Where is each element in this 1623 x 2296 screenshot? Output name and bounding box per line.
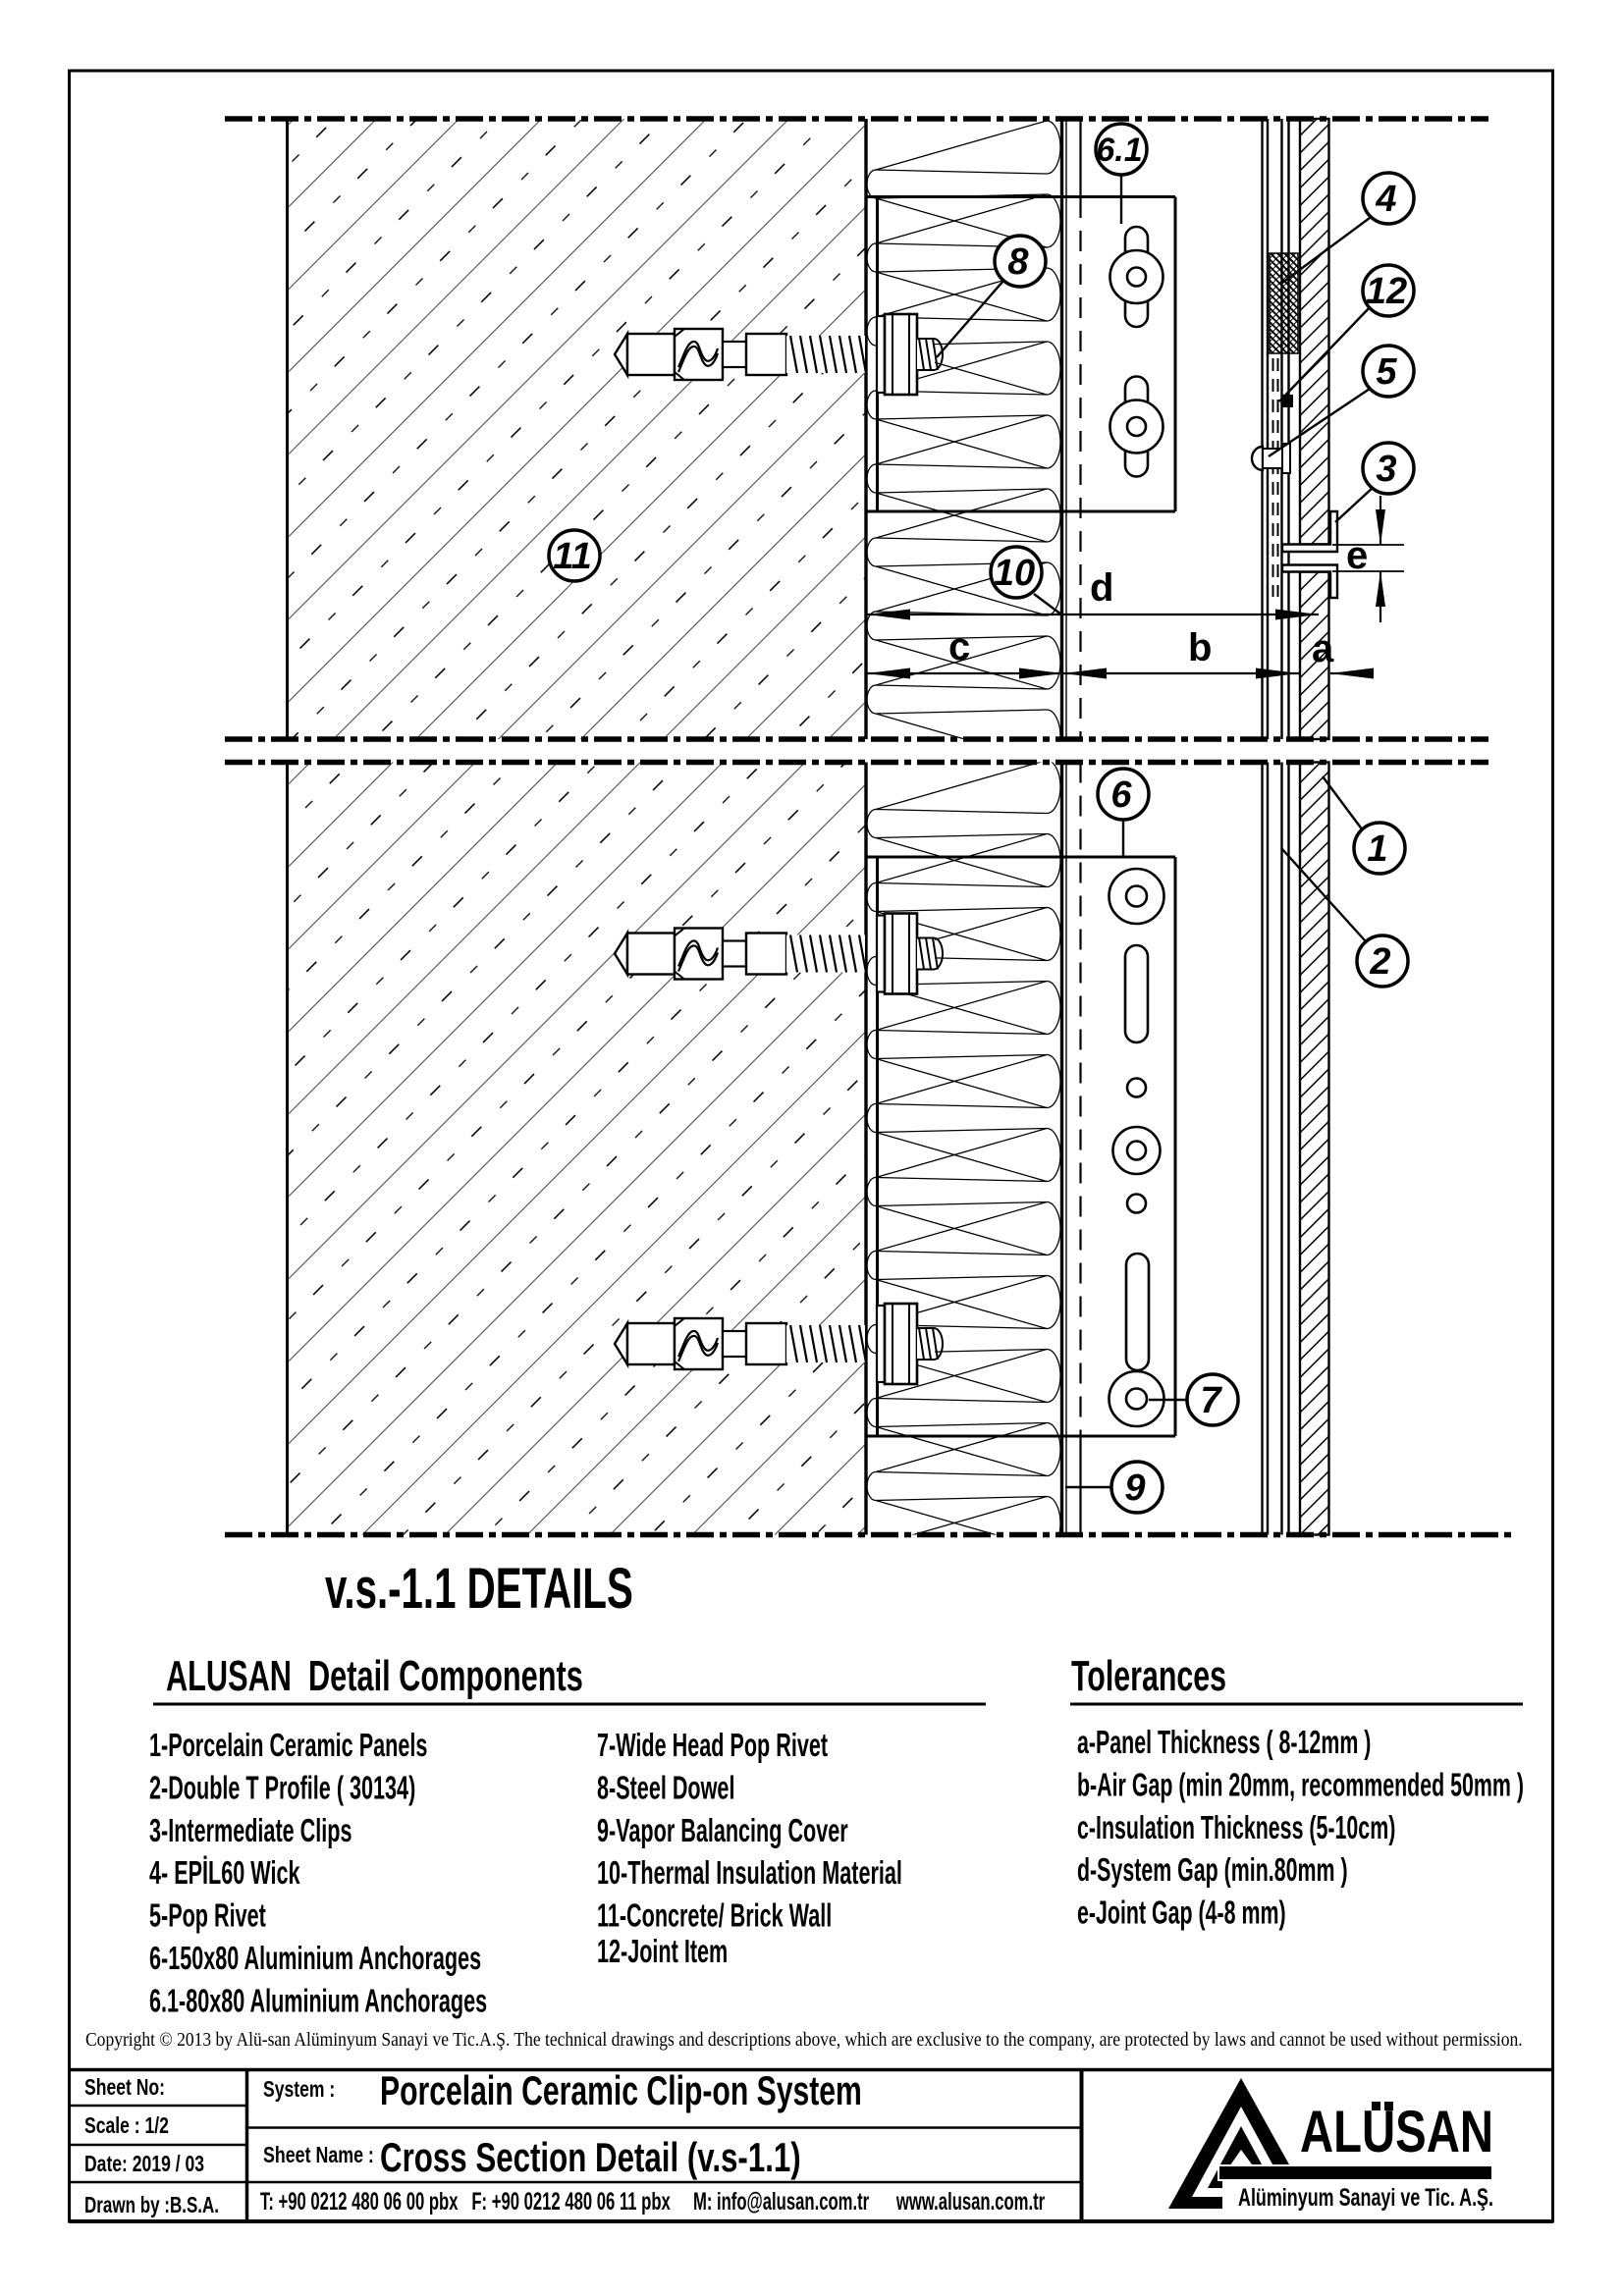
svg-text:v.s.-1.1 DETAILS: v.s.-1.1 DETAILS <box>325 1557 633 1621</box>
svg-text:7: 7 <box>1200 1380 1222 1421</box>
svg-text:10-Thermal Insulation Material: 10-Thermal Insulation Material <box>597 1855 902 1892</box>
svg-text:System :: System : <box>263 2077 335 2103</box>
svg-text:9-Vapor Balancing Cover: 9-Vapor Balancing Cover <box>597 1812 848 1848</box>
svg-text:6: 6 <box>1110 774 1132 816</box>
svg-text:3-Intermediate Clips: 3-Intermediate Clips <box>149 1812 352 1848</box>
svg-text:d-System Gap (min.80mm ): d-System Gap (min.80mm ) <box>1077 1852 1348 1889</box>
svg-text:d: d <box>1090 566 1113 610</box>
svg-text:e: e <box>1346 534 1368 577</box>
svg-text:5: 5 <box>1376 351 1397 393</box>
svg-text:e-Joint Gap (4-8 mm): e-Joint Gap (4-8 mm) <box>1077 1895 1286 1931</box>
svg-text:Date: 2019 / 03: Date: 2019 / 03 <box>84 2152 204 2177</box>
svg-text:a-Panel Thickness ( 8-12mm ): a-Panel Thickness ( 8-12mm ) <box>1077 1724 1371 1760</box>
svg-text:10: 10 <box>994 553 1035 594</box>
svg-text:11-Concrete/ Brick Wall: 11-Concrete/ Brick Wall <box>597 1897 832 1934</box>
svg-text:12: 12 <box>1366 271 1407 312</box>
svg-text:12-Joint Item: 12-Joint Item <box>597 1933 728 1969</box>
svg-text:5-Pop Rivet: 5-Pop Rivet <box>149 1897 266 1934</box>
svg-text:c-Insulation Thickness (5-10cm: c-Insulation Thickness (5-10cm) <box>1077 1809 1395 1845</box>
svg-text:4- EPİL60 Wick: 4- EPİL60 Wick <box>149 1855 300 1892</box>
svg-text:9: 9 <box>1124 1468 1145 1509</box>
svg-text:2-Double T Profile ( 30134): 2-Double T Profile ( 30134) <box>149 1770 415 1806</box>
svg-text:3: 3 <box>1376 449 1396 490</box>
svg-text:Scale : 1/2: Scale : 1/2 <box>84 2113 169 2139</box>
svg-text:b-Air Gap (min 20mm, recommend: b-Air Gap (min 20mm, recommended 50mm ) <box>1077 1767 1524 1803</box>
svg-text:Porcelain Ceramic Clip-on Syst: Porcelain Ceramic Clip-on System <box>380 2067 862 2113</box>
svg-text:Tolerances: Tolerances <box>1071 1653 1226 1701</box>
svg-text:6-150x80 Aluminium Anchorages: 6-150x80 Aluminium Anchorages <box>149 1940 481 1976</box>
svg-text:Drawn by :B.S.A.: Drawn by :B.S.A. <box>84 2194 219 2218</box>
svg-text:b: b <box>1188 626 1212 669</box>
svg-text:1: 1 <box>1367 828 1387 870</box>
svg-text:Sheet Name :: Sheet Name : <box>263 2143 374 2168</box>
svg-text:2: 2 <box>1369 941 1390 983</box>
svg-text:ALUSAN Detail Components: ALUSAN Detail Components <box>166 1653 583 1701</box>
svg-text:T: +90 0212 480 06 00 pbx F:: T: +90 0212 480 06 00 pbx F: +90 0212 48… <box>260 2188 1045 2216</box>
svg-text:a: a <box>1312 627 1334 670</box>
svg-text:Sheet No:: Sheet No: <box>84 2075 165 2101</box>
svg-text:11: 11 <box>553 536 591 577</box>
svg-text:Alüminyum Sanayi ve Tic. A.Ş.: Alüminyum Sanayi ve Tic. A.Ş. <box>1238 2184 1493 2212</box>
svg-text:Copyright © 2013 by Alü-san Al: Copyright © 2013 by Alü-san Alüminyum Sa… <box>85 2029 1523 2052</box>
svg-text:4: 4 <box>1375 179 1396 220</box>
svg-text:6.1-80x80 Aluminium Anchorages: 6.1-80x80 Aluminium Anchorages <box>149 1983 487 2019</box>
svg-text:Cross Section Detail (v.s-1.1): Cross Section Detail (v.s-1.1) <box>380 2133 801 2180</box>
svg-text:1-Porcelain Ceramic Panels: 1-Porcelain Ceramic Panels <box>149 1727 427 1763</box>
svg-text:8: 8 <box>1007 241 1029 283</box>
svg-text:8-Steel Dowel: 8-Steel Dowel <box>597 1770 734 1806</box>
svg-text:6.1: 6.1 <box>1096 132 1142 169</box>
svg-text:ALUSAN: ALUSAN <box>1300 2099 1493 2164</box>
svg-text:7-Wide Head Pop Rivet: 7-Wide Head Pop Rivet <box>597 1727 828 1763</box>
svg-text:c: c <box>948 625 970 668</box>
